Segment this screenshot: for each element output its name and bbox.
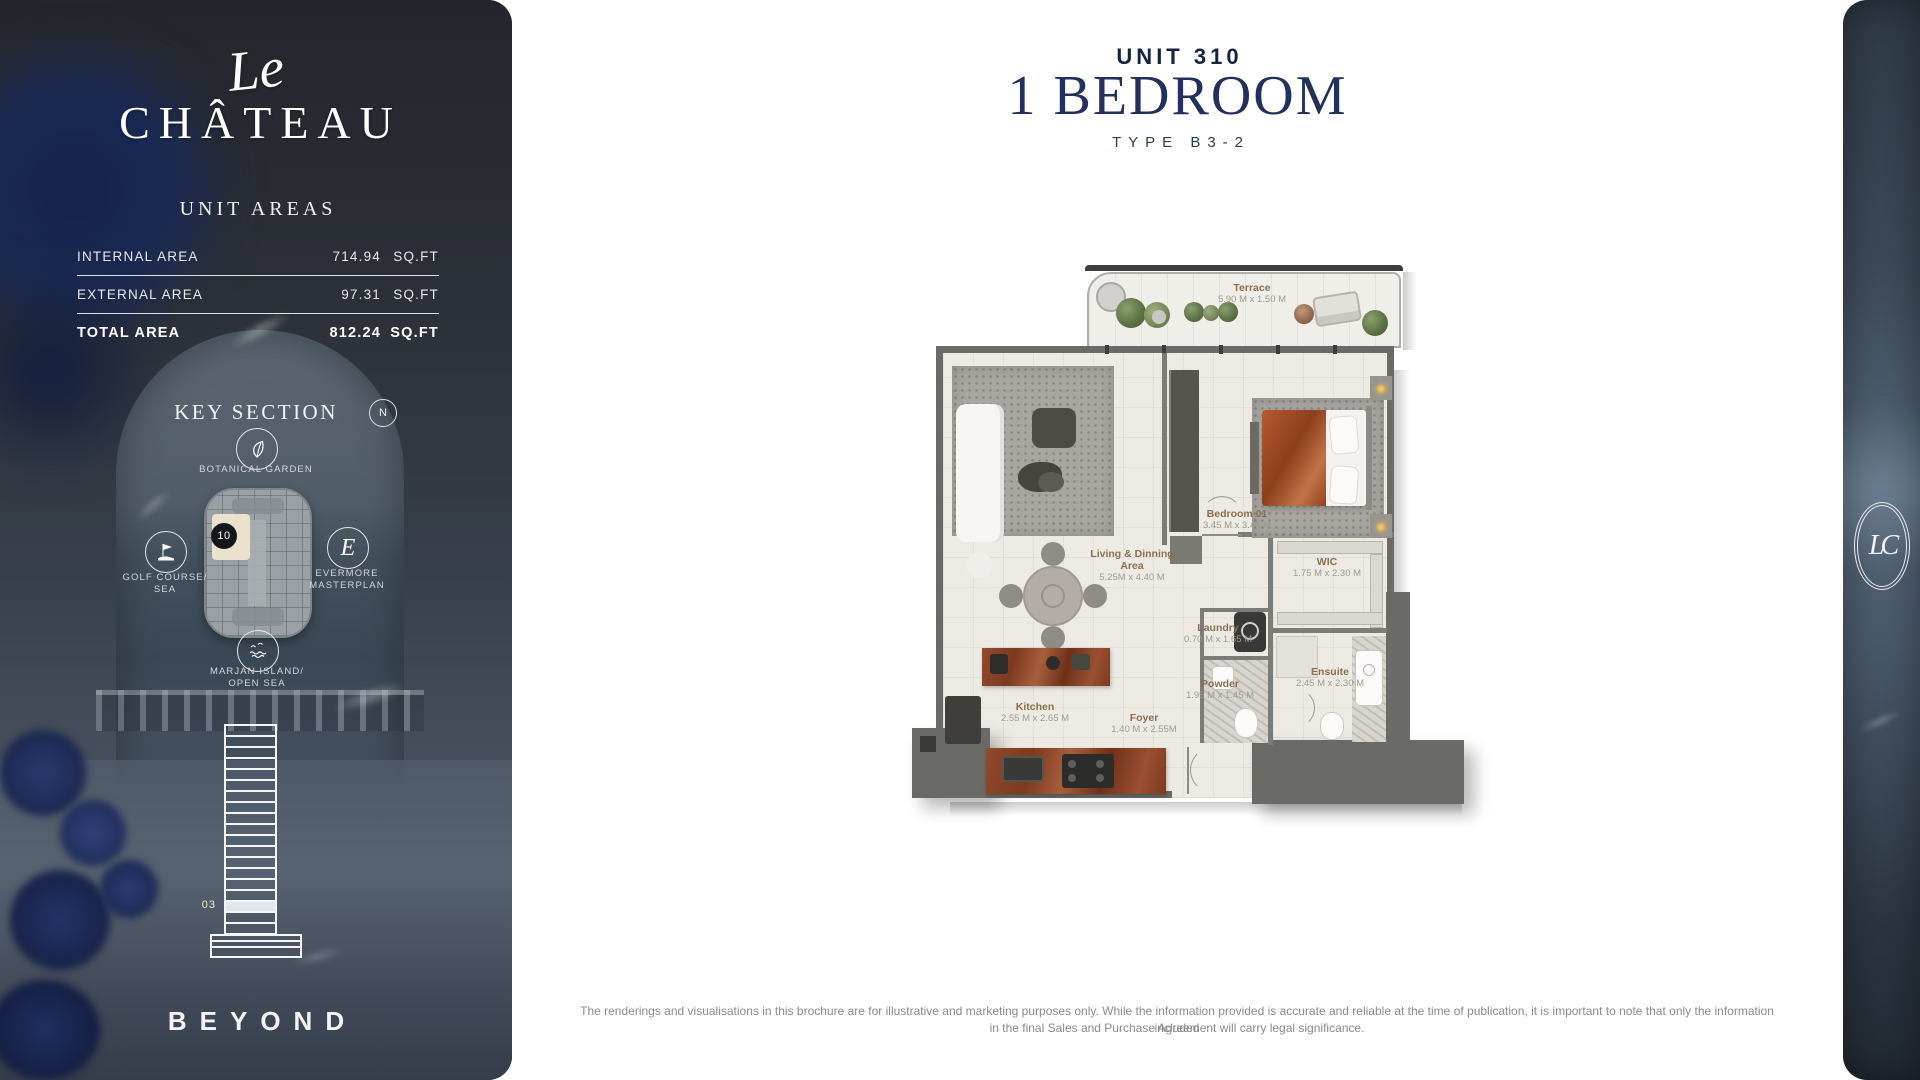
room-label-kitchen: Kitchen 2.55 M x 2.65 M	[985, 701, 1085, 725]
unit-areas-row-internal: INTERNAL AREA 714.94 SQ.FT	[77, 238, 439, 275]
structural-column	[920, 736, 936, 752]
room-name: Ensuite	[1280, 666, 1380, 678]
headboard	[1366, 406, 1372, 510]
room-name: Powder	[1170, 678, 1270, 690]
blue-flower-decoration	[0, 730, 86, 816]
blue-flower-decoration	[100, 860, 158, 918]
sofa	[956, 404, 1004, 542]
room-dimensions: 1.75 M x 2.30 M	[1277, 568, 1377, 580]
dining-chair	[999, 584, 1023, 608]
room-dimensions: 2.55 M x 2.65 M	[985, 713, 1085, 725]
powder-toilet	[1234, 708, 1258, 738]
plan-shadow	[1403, 272, 1417, 350]
unit-areas-table: INTERNAL AREA 714.94 SQ.FT EXTERNAL AREA…	[77, 238, 439, 351]
main-content: UNIT 310 1 BEDROOM TYPE B3-2	[512, 0, 1843, 1080]
partition-wic-ensuite	[1273, 628, 1387, 633]
developer-brand-beyond: BEYOND	[0, 1006, 512, 1037]
keyplan-wing	[232, 608, 284, 626]
terrace-parapet-wall	[1085, 265, 1403, 271]
room-label-ensuite: Ensuite 2.45 M x 2.30 M	[1280, 666, 1380, 690]
golf-flag-glyph	[155, 541, 177, 563]
building-elevation-diagram	[224, 724, 277, 936]
ensuite-toilet	[1320, 712, 1344, 740]
fridge	[945, 696, 981, 744]
partition-corridor-bathrooms	[1268, 536, 1273, 745]
landmark-label-line: GOLF COURSE/	[85, 572, 245, 584]
room-dimensions: 0.70 M x 1.65 M	[1168, 634, 1268, 646]
area-unit: SQ.FT	[381, 249, 439, 264]
terrace-pot	[1294, 304, 1314, 324]
kitchen-appliance	[990, 654, 1008, 674]
sea-birds-glyph	[246, 639, 270, 663]
dining-chair	[1041, 542, 1065, 566]
room-dimensions: 3.45 M x 3.45 M	[1187, 520, 1287, 532]
structural-mass	[1252, 740, 1464, 804]
north-compass-icon: N	[369, 399, 397, 427]
key-plan-floorplate: 10	[204, 488, 312, 638]
stove-burner	[1096, 774, 1104, 782]
exterior-wall-right-thick	[1386, 592, 1410, 746]
area-label: TOTAL AREA	[77, 325, 305, 341]
unit-areas-row-external: EXTERNAL AREA 97.31 SQ.FT	[77, 276, 439, 313]
golf-course-icon	[145, 531, 187, 573]
room-dimensions: 5.90 M x 1.50 M	[1202, 294, 1302, 306]
room-name: Kitchen	[985, 701, 1085, 713]
wic-shelf	[1277, 612, 1383, 625]
window-mullion	[1333, 345, 1337, 354]
entrance-door-leaf	[1187, 747, 1189, 794]
podium-line	[212, 946, 300, 948]
monogram-inner-ring	[1857, 505, 1907, 587]
area-label: EXTERNAL AREA	[77, 287, 305, 302]
landmark-label-line: SEA	[85, 584, 245, 596]
stove-burner	[1068, 774, 1076, 782]
area-unit: SQ.FT	[381, 287, 439, 302]
stove	[1062, 754, 1114, 788]
window-mullion	[1219, 345, 1223, 354]
landmark-label-line: MASTERPLAN	[267, 580, 427, 592]
room-dimensions: 5.25M x 4.40 M	[1082, 572, 1182, 584]
keyplan-wing	[232, 498, 284, 514]
landmark-label-golf: GOLF COURSE/ SEA	[85, 572, 245, 596]
brochure-page: Le CHÂTEAU UNIT AREAS INTERNAL AREA 714.…	[0, 0, 1920, 1080]
feather-decoration	[1857, 707, 1903, 736]
area-label: INTERNAL AREA	[77, 249, 305, 264]
landmark-label-line: EVERMORE	[267, 568, 427, 580]
dining-chair	[1083, 584, 1107, 608]
terrace-planter	[1184, 302, 1204, 322]
partition-living-bedroom	[1162, 353, 1167, 545]
evermore-masterplan-icon: E	[327, 527, 369, 569]
area-value: 97.31	[305, 287, 381, 302]
landmark-label-line: BOTANICAL GARDEN	[176, 464, 336, 476]
room-name: Living & Dinning Area	[1082, 548, 1182, 572]
blue-flower-decoration	[60, 800, 126, 866]
room-label-terrace: Terrace 5.90 M x 1.50 M	[1202, 282, 1302, 306]
landmark-label-botanical: BOTANICAL GARDEN	[176, 464, 336, 476]
area-value: 812.24	[305, 325, 381, 341]
exterior-wall-left	[936, 346, 943, 798]
disclaimer-line-2: in the final Sales and Purchase Agreemen…	[577, 1020, 1777, 1037]
room-name: Terrace	[1202, 282, 1302, 294]
room-label-wic: WIC 1.75 M x 2.30 M	[1277, 556, 1377, 580]
window-mullion	[1276, 345, 1280, 354]
room-dimensions: 2.45 M x 2.30 M	[1280, 678, 1380, 690]
bedside-lamp	[1376, 384, 1386, 394]
stove-burner	[1096, 760, 1104, 768]
coffee-table-top	[1038, 472, 1064, 492]
area-unit: SQ.FT	[381, 325, 439, 341]
room-dimensions: 1.95 M x 1.45 M	[1170, 690, 1270, 702]
room-label-bedroom: Bedroom 01 3.45 M x 3.45 M	[1187, 508, 1287, 532]
plan-shadow	[950, 802, 1462, 816]
landmark-label-marjan: MARJAN ISLAND/ OPEN SEA	[177, 666, 337, 690]
room-label-living-dining: Living & Dinning Area 5.25M x 4.40 M	[1082, 548, 1182, 584]
landmark-label-line: OPEN SEA	[177, 678, 337, 690]
room-name: Bedroom 01	[1187, 508, 1287, 520]
room-name: Foyer	[1094, 712, 1194, 724]
room-label-laundry: Laundry 0.70 M x 1.65 M	[1168, 622, 1268, 646]
pouf	[966, 552, 992, 578]
room-dimensions: 1.40 M x 2.55M	[1094, 724, 1194, 736]
area-value: 714.94	[305, 249, 381, 264]
blue-flower-decoration	[10, 870, 110, 970]
bedroom-door-leaf	[1202, 534, 1242, 536]
key-section-title: KEY SECTION	[0, 400, 512, 425]
bedroom-type-heading: 1 BEDROOM	[512, 64, 1843, 128]
kitchen-appliance	[1046, 656, 1060, 670]
floor-plan: Terrace 5.90 M x 1.50 M Living & Dinning…	[900, 260, 1500, 820]
podium-line	[212, 940, 300, 942]
keyplan-corridor	[248, 520, 266, 606]
stove-burner	[1068, 760, 1076, 768]
building-podium-diagram	[210, 934, 302, 958]
terrace-side-table	[1152, 310, 1166, 324]
pillow	[1329, 465, 1360, 505]
entrance-door-swing	[1190, 747, 1236, 793]
floor-level-label: 03	[186, 899, 216, 911]
landmark-label-evermore: EVERMORE MASTERPLAN	[267, 568, 427, 592]
wic-shelf	[1277, 541, 1383, 554]
pillow	[1328, 415, 1359, 455]
room-name: Laundry	[1168, 622, 1268, 634]
landmark-label-line: MARJAN ISLAND/	[177, 666, 337, 678]
logo-wordmark-chateau: CHÂTEAU	[0, 96, 512, 149]
lc-monogram: LC	[1854, 502, 1910, 590]
right-photo-strip: LC	[1843, 0, 1920, 1080]
room-label-foyer: Foyer 1.40 M x 2.55M	[1094, 712, 1194, 736]
terrace-plant	[1116, 298, 1146, 328]
unit-areas-title: UNIT AREAS	[0, 198, 512, 221]
highlighted-floor-band	[226, 902, 275, 911]
kitchen-sink	[1002, 756, 1044, 782]
sidebar: Le CHÂTEAU UNIT AREAS INTERNAL AREA 714.…	[0, 0, 512, 1080]
script-e-glyph: E	[341, 535, 356, 562]
window-mullion	[1105, 345, 1109, 354]
unit-areas-row-total: TOTAL AREA 812.24 SQ.FT	[77, 314, 439, 351]
room-name: WIC	[1277, 556, 1377, 568]
ensuite-door-swing	[1275, 688, 1315, 728]
unit-badge-text: 10	[217, 530, 230, 542]
bedside-lamp	[1376, 522, 1386, 532]
terrace-planter	[1203, 305, 1219, 321]
unit-number-badge: 10	[211, 523, 237, 549]
leaf-glyph	[246, 438, 268, 460]
bed-bench	[1250, 422, 1259, 494]
dining-chair	[1041, 626, 1065, 650]
terrace-plant	[1362, 310, 1388, 336]
kitchen-appliance	[1072, 654, 1090, 670]
compass-letter: N	[379, 407, 387, 419]
armchair	[1032, 408, 1076, 448]
unit-type-code: TYPE B3-2	[512, 134, 1843, 151]
bed-blanket	[1262, 410, 1326, 506]
dining-table-center	[1041, 584, 1065, 608]
room-label-powder: Powder 1.95 M x 1.45 M	[1170, 678, 1270, 702]
